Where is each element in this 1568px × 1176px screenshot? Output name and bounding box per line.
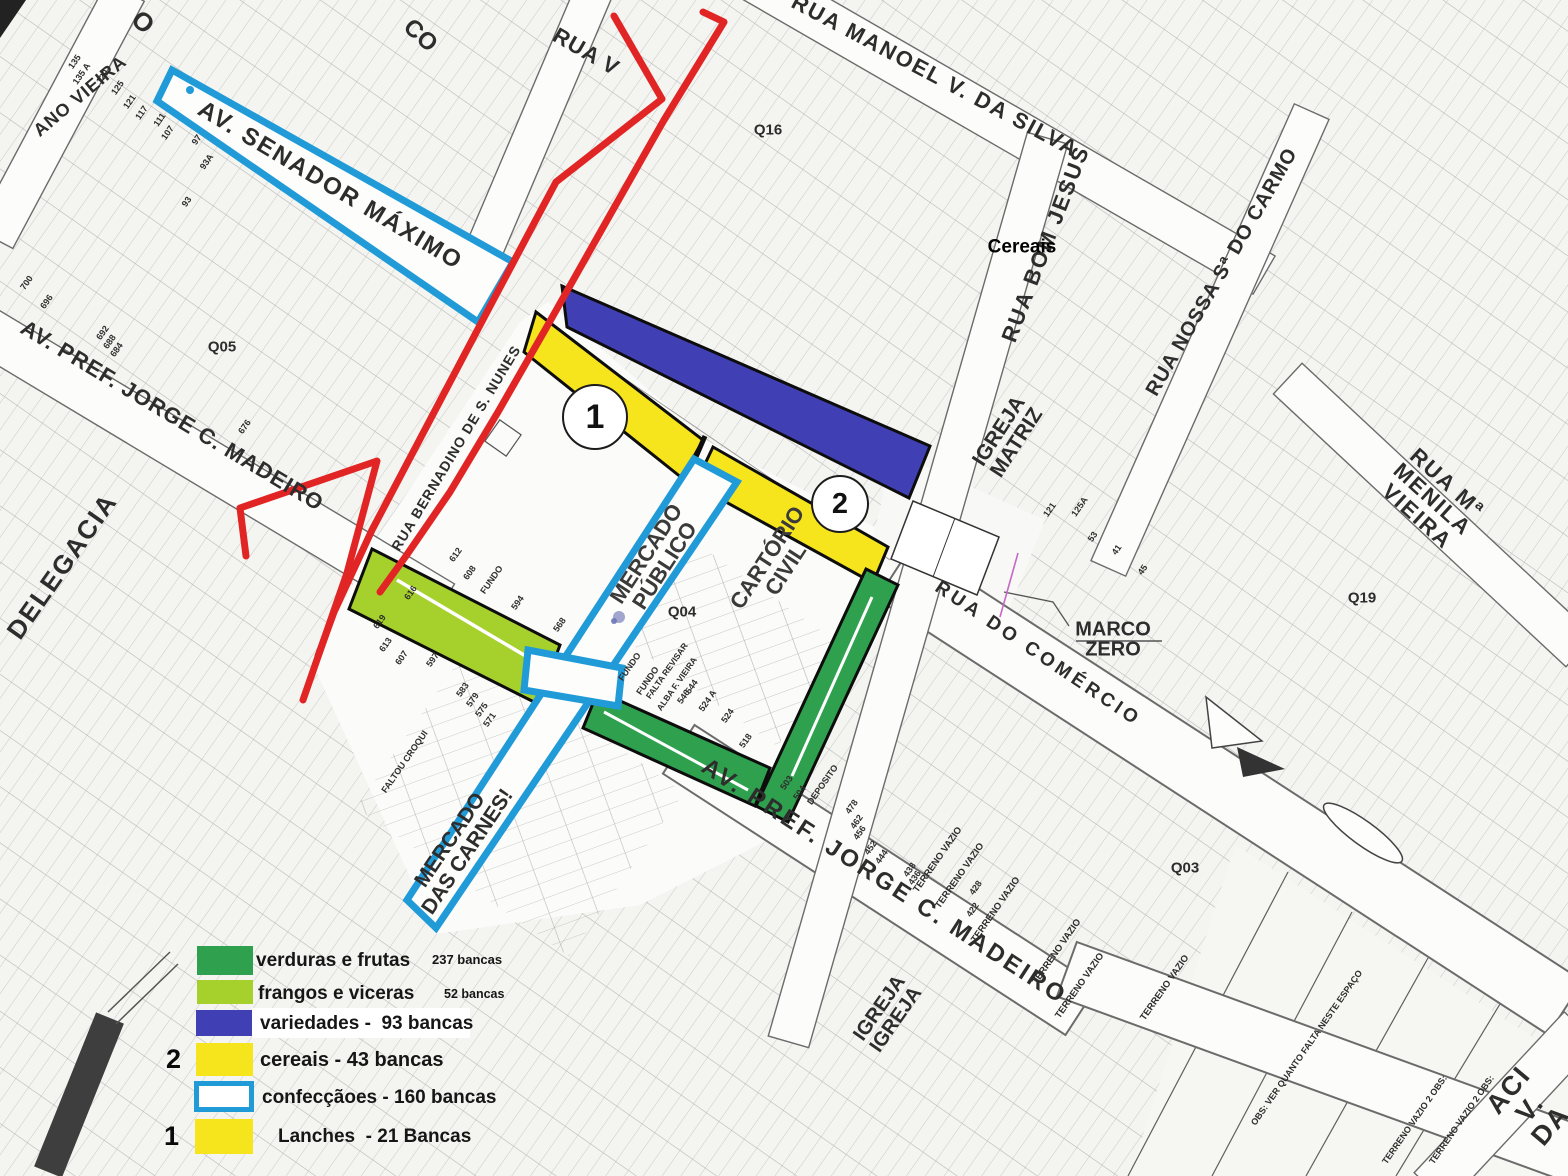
legend-swatch-cereais <box>196 1043 253 1076</box>
legend-label-cereais: cereais - 43 bancas <box>260 1049 443 1072</box>
sector-marker-2: 2 <box>811 475 869 533</box>
legend-marker-2: 2 <box>166 1044 181 1075</box>
ink-smudge-2 <box>611 618 617 624</box>
legend-swatch-variedades <box>196 1010 252 1036</box>
corridor-dot <box>186 86 194 94</box>
sector-marker-1: 1 <box>562 384 628 450</box>
legend-swatch-lanches <box>195 1119 253 1154</box>
legend-label-variedades: variedades - 93 bancas <box>260 1013 473 1035</box>
legend-count-frangos: 52 bancas <box>444 987 504 1001</box>
legend-label-confeccoes: confecçãoes - 160 bancas <box>262 1087 496 1109</box>
legend-label-lanches: Lanches - 21 Bancas <box>278 1126 471 1148</box>
legend-swatch-confeccoes <box>194 1081 254 1112</box>
legend-count-verduras: 237 bancas <box>432 952 502 967</box>
map-canvas: AV. SENADOR MÁXIMORUA MANOEL V. DA SILVA… <box>0 0 1568 1176</box>
legend-label-verduras: verduras e frutas <box>256 950 410 972</box>
legend-swatch-verduras <box>197 946 253 975</box>
legend-label-frangos: frangos e viceras <box>258 983 414 1005</box>
legend-marker-1: 1 <box>164 1121 179 1152</box>
legend-swatch-frangos <box>197 980 253 1004</box>
